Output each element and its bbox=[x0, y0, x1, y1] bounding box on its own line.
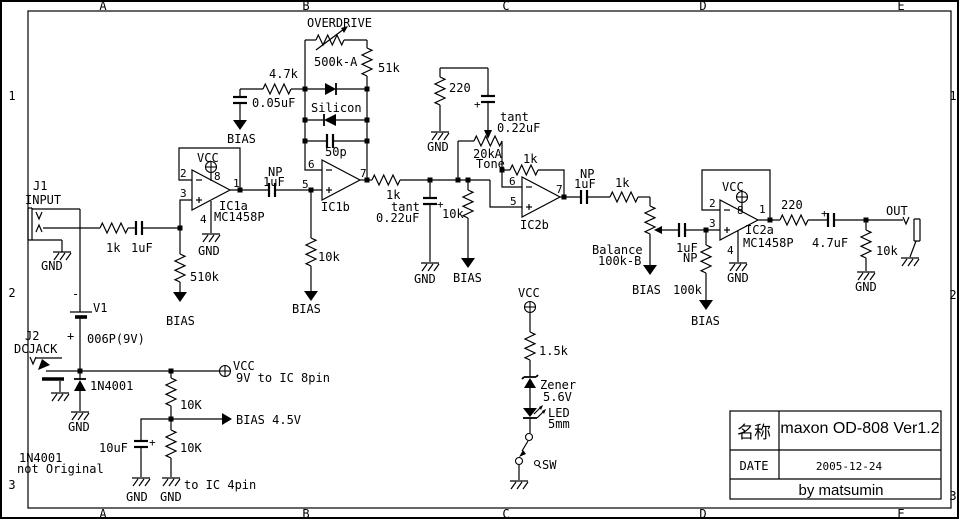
ic2a-p2: 2 bbox=[709, 197, 716, 210]
j2-name: DCJACK bbox=[14, 342, 58, 356]
gnd-out10k: GND bbox=[855, 280, 877, 294]
od-val: 500k-A bbox=[314, 55, 358, 69]
r-1k-fb: 1k bbox=[523, 152, 538, 166]
ic2a-p1: 1 bbox=[759, 203, 766, 216]
led-size: 5mm bbox=[548, 417, 570, 431]
out-name: OUT bbox=[886, 204, 908, 218]
cap-1uF-in bbox=[136, 221, 142, 235]
ic2b-p5: 5 bbox=[510, 195, 517, 208]
bias-arrow-icon bbox=[304, 291, 318, 301]
ic2a-p4: 4 bbox=[727, 244, 734, 257]
ic1b-p5: 5 bbox=[302, 178, 309, 191]
cap-tant-0.22uF bbox=[423, 198, 437, 204]
r-div2: 10K bbox=[180, 441, 202, 455]
r-47k: 4.7k bbox=[269, 67, 299, 81]
grid-col-bottom-B: B bbox=[302, 507, 309, 520]
r-div1: 10K bbox=[180, 398, 202, 412]
grid-row-left-3: 3 bbox=[8, 478, 15, 492]
r-10k-out: 10k bbox=[876, 244, 898, 258]
switch-glyph-icon bbox=[535, 461, 540, 466]
resistor-510k bbox=[175, 254, 185, 282]
output-jack bbox=[901, 217, 920, 266]
ic1b-p7: 7 bbox=[360, 167, 367, 180]
ground-icon bbox=[132, 478, 150, 486]
grid-row-right-2: 2 bbox=[949, 288, 956, 302]
date-value: 2005-12-24 bbox=[816, 460, 883, 473]
ground-icon bbox=[71, 412, 89, 420]
ic2a-ref: IC2a bbox=[745, 223, 774, 237]
j1-gnd: GND bbox=[41, 259, 63, 273]
ic2a-part: MC1458P bbox=[743, 236, 794, 250]
bias-arrow-icon bbox=[643, 265, 657, 275]
bias-100k: BIAS bbox=[691, 314, 720, 328]
j1-ref: J1 bbox=[33, 179, 47, 193]
jack-tip-contact-icon bbox=[36, 212, 42, 219]
c-np3-np: NP bbox=[683, 251, 697, 265]
diode-1n4001-icon bbox=[74, 380, 86, 391]
r-220-tone: 220 bbox=[449, 81, 471, 95]
resistor-10k-mid bbox=[463, 190, 473, 218]
ic1a-part: MC1458P bbox=[214, 210, 265, 224]
bias-bal: BIAS bbox=[632, 283, 661, 297]
schematic-page: J1INPUTGND1k1uF510kBIAS-V1+006P(9V)J2DCJ… bbox=[0, 0, 960, 520]
ic1a-p3: 3 bbox=[180, 187, 187, 200]
c-np2-val: 1uF bbox=[574, 177, 596, 191]
c-tant2-p: + bbox=[474, 98, 481, 111]
ic1a-p2: 2 bbox=[180, 167, 187, 180]
ic2a-p8: 8 bbox=[737, 204, 744, 217]
r-100k: 100k bbox=[673, 283, 703, 297]
grid-col-bottom-A: A bbox=[99, 507, 107, 520]
ic1a-p8: 8 bbox=[214, 170, 221, 183]
credit: by matsumin bbox=[798, 482, 883, 499]
date-label: DATE bbox=[740, 459, 769, 473]
c-47-plus: + bbox=[821, 207, 828, 220]
resistor-4.7k bbox=[263, 84, 291, 94]
switch-contact-icon bbox=[516, 458, 523, 465]
ic1b-p6: 6 bbox=[308, 158, 315, 171]
c-47-val: 4.7uF bbox=[812, 236, 848, 250]
ic1a-p1: 1 bbox=[233, 177, 240, 190]
resistor-51k bbox=[362, 48, 372, 76]
led-indicator bbox=[510, 302, 546, 490]
gnd-tant1: GND bbox=[414, 272, 436, 286]
ic1a-p4: 4 bbox=[200, 213, 207, 226]
ic1b-ref: IC1b bbox=[321, 200, 350, 214]
title-name-label: 名称 bbox=[737, 423, 771, 442]
ground-icon bbox=[857, 272, 875, 280]
vcc-note: 9V to IC 8pin bbox=[236, 371, 330, 385]
ic2b-ref: IC2b bbox=[520, 218, 549, 232]
ground-icon bbox=[202, 234, 220, 242]
vcc-icon bbox=[220, 366, 231, 377]
schematic-canvas: J1INPUTGND1k1uF510kBIAS-V1+006P(9V)J2DCJ… bbox=[0, 0, 960, 520]
c-005: 0.05uF bbox=[252, 96, 295, 110]
gnd-cbias: GND bbox=[126, 490, 148, 504]
r-220-out: 220 bbox=[781, 198, 803, 212]
grid-col-bottom-D: D bbox=[699, 507, 706, 520]
vcc-icon bbox=[525, 302, 536, 313]
c-tant1-v: 0.22uF bbox=[376, 211, 419, 225]
ground-icon bbox=[51, 393, 69, 401]
coupling-np1 bbox=[269, 183, 322, 301]
ground-icon bbox=[162, 478, 180, 486]
bias-arrow-icon bbox=[461, 258, 475, 268]
jack-ring-contact-icon bbox=[36, 225, 42, 232]
resistor-10K-1 bbox=[166, 378, 176, 406]
switch-lever-icon bbox=[519, 450, 526, 457]
resistor-100k bbox=[701, 245, 711, 273]
opamp-ic1a bbox=[179, 148, 269, 242]
j2-ref: J2 bbox=[25, 329, 39, 343]
ic2b-p6: 6 bbox=[509, 175, 516, 188]
cap-10uF bbox=[134, 441, 148, 447]
resistor-1.5k bbox=[525, 332, 535, 360]
jack-tip-contact-icon bbox=[903, 217, 909, 224]
bias-005: BIAS bbox=[227, 132, 256, 146]
resistor-10K-2 bbox=[166, 430, 176, 458]
ground-icon bbox=[431, 132, 449, 140]
diode-icon bbox=[324, 114, 336, 126]
r-51k: 51k bbox=[378, 61, 400, 75]
ground-icon bbox=[729, 263, 747, 271]
bias-out-arrow-icon bbox=[222, 413, 232, 425]
r-15k: 1.5k bbox=[539, 344, 569, 358]
bat-plus: + bbox=[67, 329, 74, 343]
opamp-symbol bbox=[522, 177, 560, 217]
bias-arrow-icon bbox=[233, 120, 247, 130]
bias-510k: BIAS bbox=[166, 314, 195, 328]
title-text: maxon OD-808 Ver1.2 bbox=[780, 420, 939, 437]
grid-col-top-C: C bbox=[502, 0, 509, 13]
c-bias-plus: + bbox=[149, 436, 156, 449]
grid-col-bottom-E: E bbox=[897, 507, 904, 520]
ic2a-vcc: VCC bbox=[722, 180, 744, 194]
bias-arrow-icon bbox=[173, 292, 187, 302]
j1-name: INPUT bbox=[25, 193, 61, 207]
pin4-note: to IC 4pin bbox=[184, 478, 256, 492]
grid-col-top-E: E bbox=[897, 0, 904, 13]
r-1k-post: 1k bbox=[615, 176, 630, 190]
grid-col-top-A: A bbox=[99, 0, 107, 13]
resistor-1k-fb bbox=[510, 165, 538, 175]
c-50p: 50p bbox=[325, 145, 347, 159]
c-np1-val: 1uF bbox=[263, 175, 285, 189]
ic1a-vcc: VCC bbox=[197, 151, 219, 165]
gnd-tone: GND bbox=[427, 140, 449, 154]
r-in-value: 1k bbox=[106, 241, 121, 255]
grid-row-left-2: 2 bbox=[8, 286, 15, 300]
d-prot-gnd: GND bbox=[68, 420, 90, 434]
bias-45: BIAS 4.5V bbox=[236, 413, 301, 427]
diode-icon bbox=[325, 83, 336, 95]
opamp-ic1b bbox=[322, 160, 372, 200]
grid-col-top-B: B bbox=[302, 0, 309, 13]
input-jack-j1 bbox=[28, 208, 100, 260]
ground-icon bbox=[421, 263, 439, 271]
c-tant2-v: 0.22uF bbox=[497, 121, 540, 135]
pot-bal-val: 100k-B bbox=[598, 254, 641, 268]
ic2a-gnd: GND bbox=[727, 271, 749, 285]
resistor-1k-in bbox=[100, 223, 128, 233]
resistor-220-out bbox=[780, 215, 808, 225]
bat-ref: V1 bbox=[93, 301, 107, 315]
ic1a-gnd: GND bbox=[198, 244, 220, 258]
r-10k-b1: 10k bbox=[318, 250, 340, 264]
zener-v: 5.6V bbox=[543, 390, 572, 404]
pot-tone: Tone bbox=[476, 157, 505, 171]
note-orig: not Original bbox=[17, 462, 104, 476]
bias-mid: BIAS bbox=[453, 271, 482, 285]
d-silicon: Silicon bbox=[311, 101, 362, 115]
ic2a-p3: 3 bbox=[709, 217, 716, 230]
od-title: OVERDRIVE bbox=[307, 16, 372, 30]
ground-icon bbox=[901, 258, 919, 266]
vcc-led: VCC bbox=[518, 286, 540, 300]
resistor-1k-post bbox=[610, 192, 638, 202]
ic2b-p7: 7 bbox=[556, 183, 563, 196]
cap-4.7uF bbox=[828, 213, 834, 227]
resistor-220-tone bbox=[435, 77, 445, 105]
cap-1uF-np3 bbox=[679, 223, 685, 237]
grid-row-right-1: 1 bbox=[949, 89, 956, 103]
labels-layer: J1INPUTGND1k1uF510kBIAS-V1+006P(9V)J2DCJ… bbox=[8, 0, 956, 520]
sw-name: SW bbox=[542, 458, 557, 472]
zener-icon bbox=[524, 378, 536, 388]
grid-col-bottom-C: C bbox=[502, 507, 509, 520]
r-bias-in: 510k bbox=[190, 270, 220, 284]
switch-contact-icon bbox=[526, 434, 533, 441]
cap-0.05uF bbox=[233, 97, 247, 103]
gnd-div: GND bbox=[160, 490, 182, 504]
resistor-10k-out bbox=[861, 230, 871, 258]
c-bias: 10uF bbox=[99, 441, 128, 455]
pot-100k-balance bbox=[645, 206, 655, 234]
bias-arrow-icon bbox=[699, 300, 713, 310]
ground-icon bbox=[510, 481, 528, 489]
d-prot: 1N4001 bbox=[90, 379, 133, 393]
r-10k-mid: 10k bbox=[442, 207, 464, 221]
grid-row-left-1: 1 bbox=[8, 89, 15, 103]
bias-b1: BIAS bbox=[292, 302, 321, 316]
dc-plug-arrow-icon bbox=[38, 359, 50, 370]
resistor-1k-mid bbox=[372, 175, 400, 185]
c-in-value: 1uF bbox=[131, 241, 153, 255]
cap-1uF-np2 bbox=[581, 190, 587, 204]
grid-row-right-3: 3 bbox=[949, 489, 956, 503]
bat-minus: - bbox=[72, 287, 79, 301]
resistor-10k bbox=[306, 238, 316, 266]
grid-col-top-D: D bbox=[699, 0, 706, 13]
opamp-symbol bbox=[322, 160, 360, 200]
bat-type: 006P(9V) bbox=[87, 332, 145, 346]
cap-tant-0.22uF-tone bbox=[481, 96, 495, 102]
